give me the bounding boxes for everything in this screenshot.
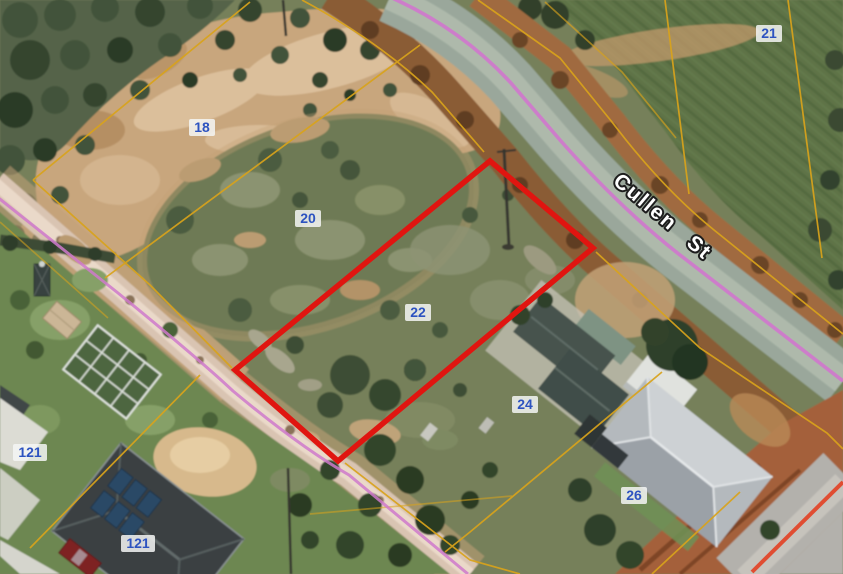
lot-label-121-west: 121 [13,444,47,461]
lot-number-text: 18 [194,119,210,135]
lot-number-text: 121 [18,444,42,460]
lot-label-26: 26 [621,487,647,504]
aerial-map[interactable]: Cullen St 18 20 21 22 24 26 12 [0,0,843,574]
lot-label-121-south: 121 [121,535,155,552]
lot-number-text: 24 [517,396,533,412]
lot-label-18: 18 [189,119,215,136]
lot-label-22: 22 [405,304,431,321]
map-viewport[interactable]: Cullen St 18 20 21 22 24 26 12 [0,0,843,574]
lot-number-text: 21 [761,25,777,41]
lot-label-24: 24 [512,396,538,413]
lot-number-text: 20 [300,210,316,226]
terrain-base [0,0,843,574]
lot-label-20: 20 [295,210,321,227]
lot-number-text: 22 [410,304,426,320]
water-tower [34,261,50,296]
lot-number-text: 121 [126,535,150,551]
lot-number-text: 26 [626,487,642,503]
lot-label-21: 21 [756,25,782,42]
